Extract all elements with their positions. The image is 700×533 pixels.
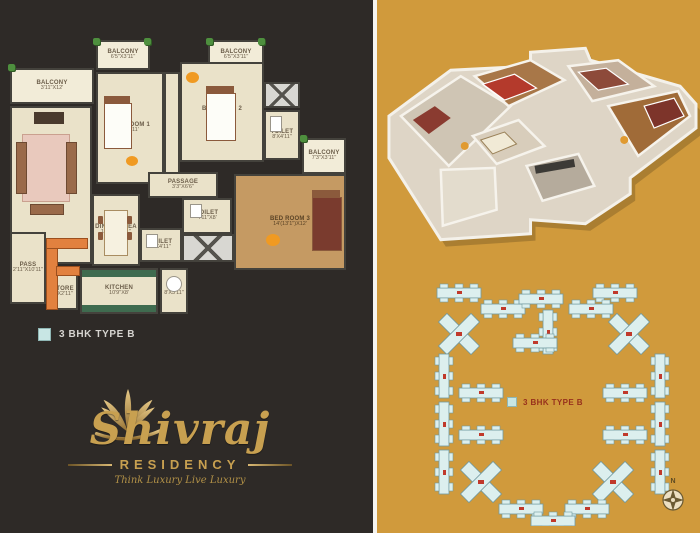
- legend-label: 3 BHK TYPE B: [523, 398, 583, 407]
- chair-icon: [127, 232, 132, 240]
- toilet-fixture-icon: [146, 234, 158, 248]
- plant-icon: [206, 38, 213, 45]
- 3d-floorplan-render: [377, 4, 700, 266]
- plant-icon: [8, 64, 15, 71]
- plant-icon: [93, 38, 100, 45]
- room-dims: 14'(13'1")X12': [273, 222, 307, 228]
- legend-swatch: [38, 328, 51, 341]
- plant-icon: [258, 38, 265, 45]
- beanbag-icon: [266, 234, 280, 246]
- room-dims: 8'X4'11": [272, 135, 292, 141]
- room-balcony-right: BALCONY 7'3"X3'11": [302, 138, 346, 174]
- room-dims: 6'5"X3'11": [111, 55, 136, 61]
- sofa-icon: [30, 204, 64, 215]
- decorative-line: [248, 464, 292, 466]
- floorplan-2d: BALCONY 3'11"X12' BALCONY 6'5"X3'11" BED…: [8, 38, 346, 316]
- compass-rose: N: [655, 478, 691, 522]
- room-passage: PASSAGE 3'3"X6'6": [148, 172, 218, 198]
- legend-label: 3 BHK TYPE B: [59, 329, 135, 340]
- toilet-fixture-icon: [190, 204, 202, 218]
- brochure-page: { "left_panel": { "legend": {"label": "3…: [0, 0, 700, 533]
- brand-tagline: Think Luxury Live Luxury: [62, 475, 298, 486]
- room-dims: 6'5"X3'11": [224, 55, 249, 61]
- beanbag-icon: [186, 72, 199, 83]
- chair-icon: [98, 232, 103, 240]
- beanbag-icon: [126, 156, 138, 166]
- left-panel: BALCONY 3'11"X12' BALCONY 6'5"X3'11" BED…: [0, 0, 373, 533]
- bed-icon: [104, 96, 130, 103]
- accent-wall-icon: [46, 238, 88, 249]
- site-legend: 3 BHK TYPE B: [507, 397, 583, 407]
- bed-icon: [104, 103, 132, 149]
- chair-icon: [98, 216, 103, 224]
- lift-shaft-icon: [264, 82, 300, 108]
- room-dims: 10'9"X8': [109, 291, 129, 297]
- brand-name: Shivraj: [62, 404, 298, 455]
- brand-subtitle-row: RESIDENCY: [62, 457, 298, 472]
- sofa-icon: [66, 142, 77, 194]
- tv-unit-icon: [34, 112, 64, 124]
- room-dims: 8'X3'11": [164, 291, 184, 297]
- room-dims: 7'3"X3'11": [312, 156, 337, 162]
- brand-logo: Shivraj RESIDENCY Think Luxury Live Luxu…: [62, 386, 298, 516]
- bed-icon: [206, 93, 236, 141]
- rug-icon: [22, 134, 70, 202]
- room-balcony-left: BALCONY 3'11"X12': [10, 68, 94, 104]
- dining-table-icon: [104, 210, 128, 256]
- accent-wall-icon: [56, 266, 80, 276]
- room-dims: 2'11"X10'11": [13, 268, 43, 274]
- plant-icon: [144, 38, 151, 45]
- legend-swatch: [507, 397, 517, 407]
- kitchen-counter-icon: [82, 305, 156, 312]
- plant-icon: [300, 135, 307, 142]
- compass-icon: [658, 485, 688, 515]
- sofa-icon: [16, 142, 27, 194]
- decorative-line: [68, 464, 112, 466]
- room-balcony-top-1: BALCONY 6'5"X3'11": [96, 40, 150, 70]
- compass-north-label: N: [655, 478, 691, 485]
- room-pass: PASS 2'11"X10'11": [10, 232, 46, 304]
- bed-icon: [206, 86, 234, 93]
- chair-icon: [127, 216, 132, 224]
- toilet-fixture-icon: [270, 116, 282, 132]
- room-dims: 3'3"X6'6": [172, 185, 194, 191]
- washer-icon: [166, 276, 182, 292]
- right-panel: 3 BHK TYPE B N: [377, 0, 700, 533]
- bed-icon: [312, 190, 340, 197]
- bed-icon: [312, 197, 342, 251]
- floorplan-legend: 3 BHK TYPE B: [38, 328, 135, 341]
- room-corridor-strip: [164, 72, 180, 184]
- kitchen-counter-icon: [82, 270, 156, 277]
- brand-subtitle: RESIDENCY: [120, 457, 241, 472]
- lift-shaft-icon: [182, 234, 234, 262]
- room-dims: 3'11"X12': [41, 86, 64, 92]
